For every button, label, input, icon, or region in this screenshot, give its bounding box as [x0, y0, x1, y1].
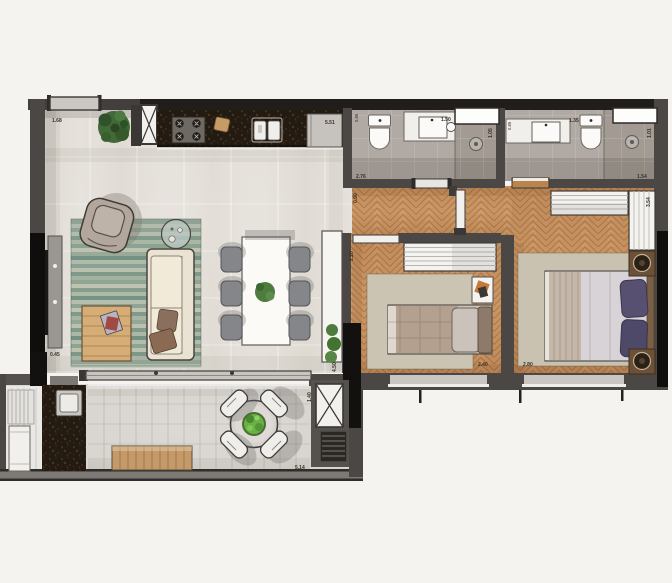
svg-text:1.68: 1.68 [52, 118, 62, 124]
svg-text:1.40: 1.40 [307, 392, 313, 402]
svg-text:2.76: 2.76 [356, 174, 366, 180]
svg-text:1.35: 1.35 [569, 118, 579, 124]
svg-text:1.20: 1.20 [349, 251, 355, 261]
svg-text:4.50: 4.50 [332, 362, 338, 372]
svg-text:0.90: 0.90 [353, 193, 359, 203]
svg-text:0.85: 0.85 [354, 113, 359, 122]
svg-text:0.85: 0.85 [507, 121, 512, 130]
svg-text:1.05: 1.05 [488, 128, 494, 138]
svg-text:2.80: 2.80 [523, 362, 533, 368]
svg-text:1.50: 1.50 [441, 117, 451, 123]
svg-text:1.54: 1.54 [637, 174, 647, 180]
svg-text:3.54: 3.54 [646, 197, 652, 207]
svg-text:1.01: 1.01 [647, 128, 653, 138]
svg-text:0.45: 0.45 [50, 352, 60, 358]
svg-text:5.14: 5.14 [295, 465, 305, 471]
svg-text:5.51: 5.51 [325, 120, 335, 126]
